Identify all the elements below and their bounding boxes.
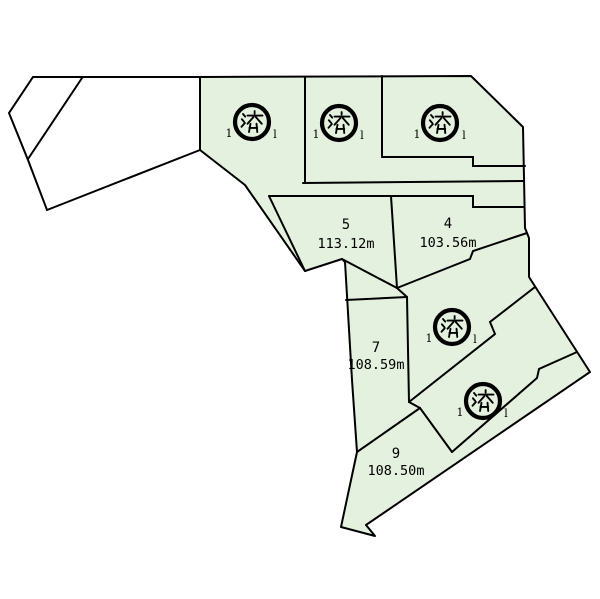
lot-4-area: 103.56m bbox=[420, 235, 477, 251]
lot-5-area: 113.12m bbox=[318, 236, 375, 252]
lot2-label-fragment-right: l bbox=[360, 129, 364, 142]
lot-7-area: 108.59m bbox=[348, 357, 405, 373]
lot6-label-fragment-left: 1 bbox=[426, 332, 433, 345]
lot-7-number: 7 bbox=[372, 340, 380, 356]
lot1-label-fragment-left: 1 bbox=[226, 127, 233, 140]
lot8-label-fragment-left: 1 bbox=[457, 406, 464, 419]
lot3-label-fragment-right: l bbox=[462, 129, 466, 142]
lot2-label-fragment-left: 1 bbox=[313, 128, 320, 141]
lot-9-area: 108.50m bbox=[368, 463, 425, 479]
lot-9-number: 9 bbox=[392, 446, 400, 462]
lot-map-page: 5 113.12m 4 103.56m 7 108.59m 9 108.50m … bbox=[0, 0, 600, 599]
lot-5-number: 5 bbox=[342, 217, 350, 233]
lot3-label-fragment-left: 1 bbox=[414, 128, 421, 141]
lot-4-number: 4 bbox=[444, 216, 452, 232]
lot-map-diagram: 5 113.12m 4 103.56m 7 108.59m 9 108.50m … bbox=[0, 0, 600, 599]
lot6-label-fragment-right: l bbox=[473, 333, 477, 346]
lot1-label-fragment-right: l bbox=[273, 128, 277, 141]
lot8-label-fragment-right: l bbox=[504, 407, 508, 420]
